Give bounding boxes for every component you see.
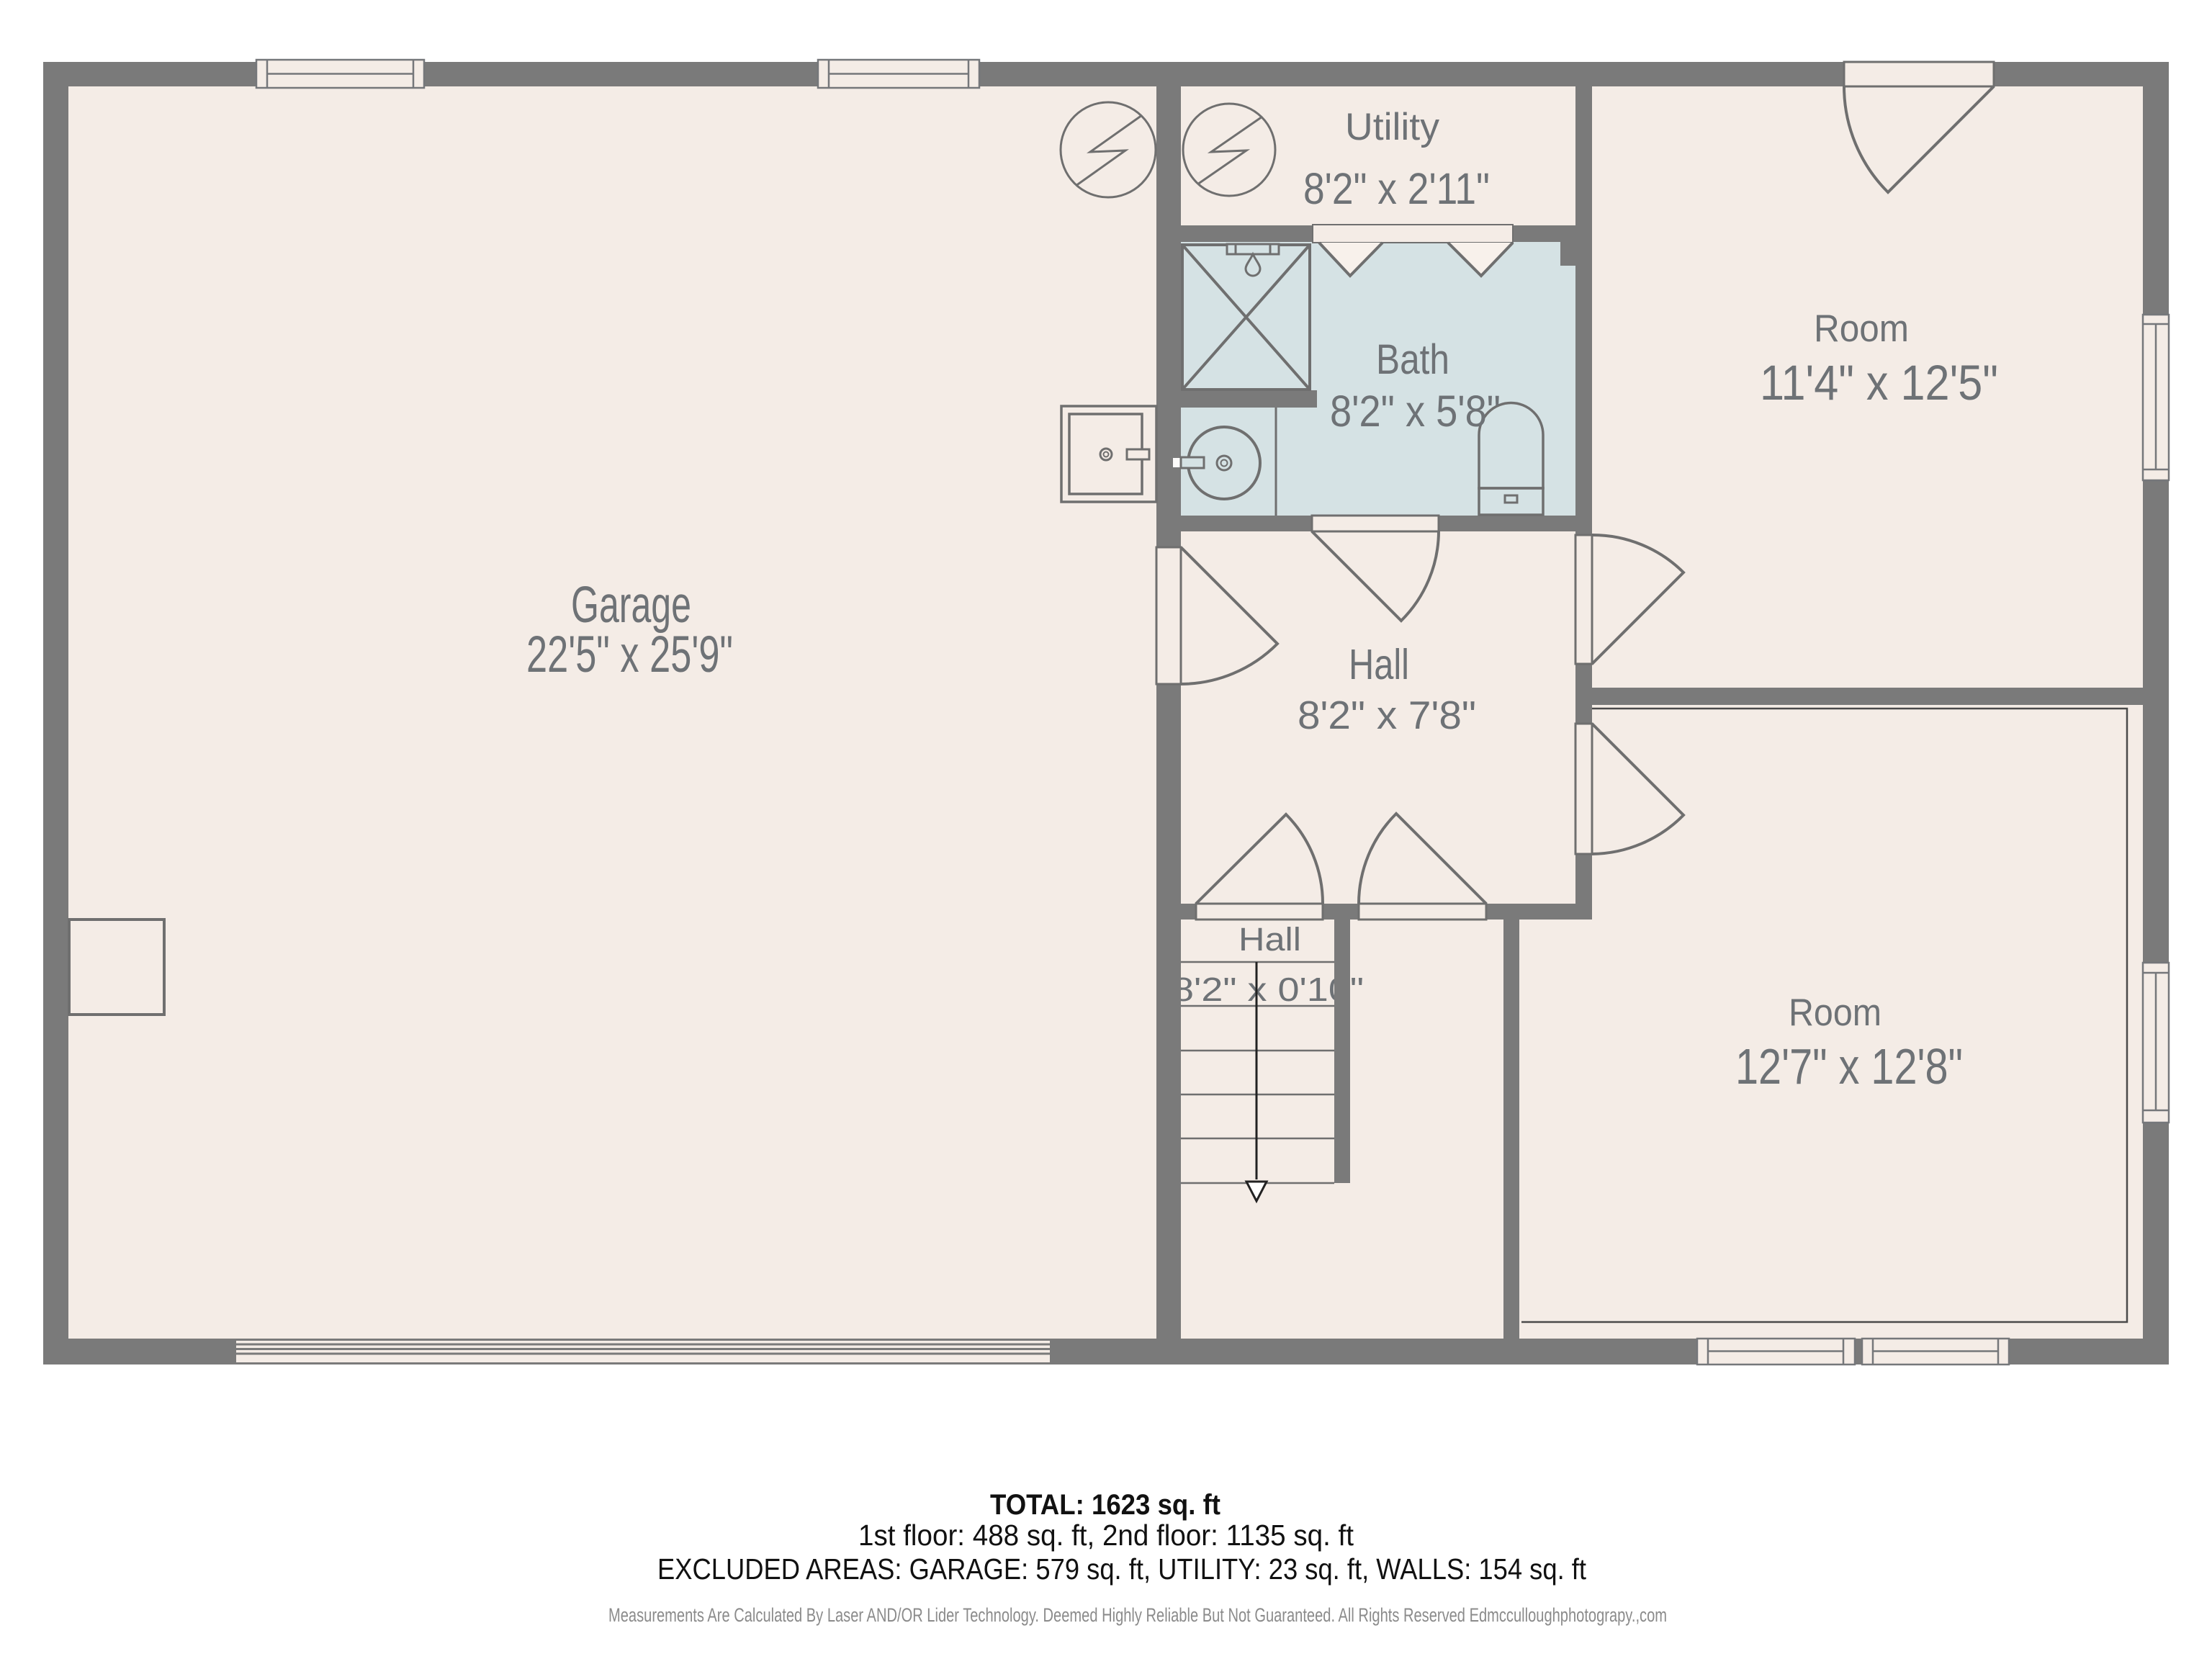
svg-text:Measurements Are Calculated By: Measurements Are Calculated By Laser AND… — [608, 1604, 1667, 1626]
svg-text:Room: Room — [1789, 992, 1881, 1034]
svg-text:Hall: Hall — [1238, 921, 1301, 958]
svg-text:8'2" x 5'8": 8'2" x 5'8" — [1330, 387, 1501, 436]
svg-text:Room: Room — [1814, 307, 1909, 350]
svg-text:12'7" x 12'8": 12'7" x 12'8" — [1735, 1038, 1963, 1094]
svg-text:8'2" x 7'8": 8'2" x 7'8" — [1298, 693, 1476, 737]
svg-text:8'2" x 2'11": 8'2" x 2'11" — [1303, 164, 1490, 213]
svg-text:TOTAL: 1623 sq. ft: TOTAL: 1623 sq. ft — [990, 1489, 1220, 1521]
svg-text:1st floor: 488 sq. ft, 2nd flo: 1st floor: 488 sq. ft, 2nd floor: 1135 s… — [858, 1519, 1354, 1552]
svg-text:EXCLUDED AREAS: GARAGE: 579 sq: EXCLUDED AREAS: GARAGE: 579 sq. ft, UTIL… — [657, 1552, 1587, 1586]
svg-text:22'5" x 25'9": 22'5" x 25'9" — [526, 626, 733, 683]
svg-text:11'4" x 12'5": 11'4" x 12'5" — [1760, 355, 1998, 410]
svg-text:Hall: Hall — [1349, 641, 1409, 688]
svg-text:Garage: Garage — [571, 577, 691, 634]
svg-text:Bath: Bath — [1376, 336, 1449, 383]
svg-text:Utility: Utility — [1345, 106, 1439, 148]
